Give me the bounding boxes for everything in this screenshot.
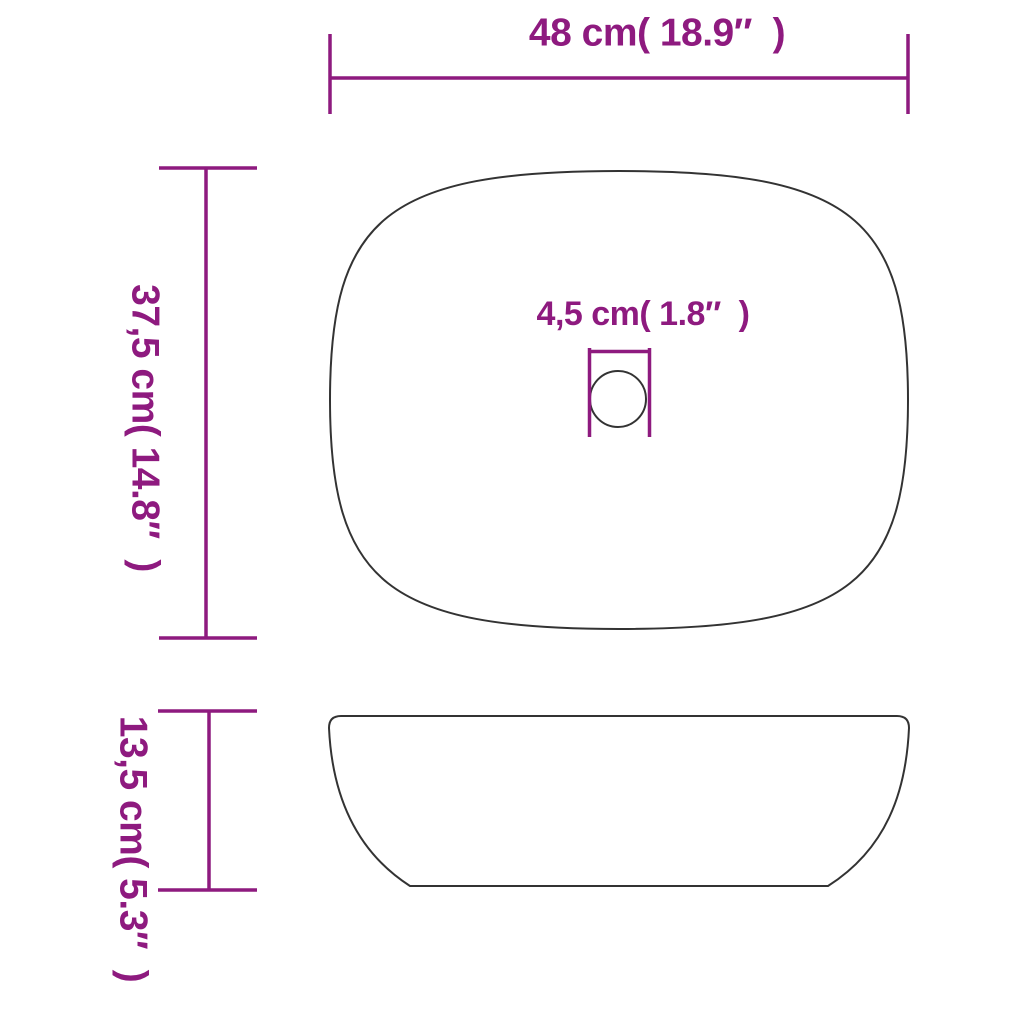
drain-dimension-label: 4,5 cm( 1.8″ ) — [537, 297, 750, 331]
depth-dimension-line — [159, 168, 257, 638]
height-dimension-line — [158, 711, 257, 890]
depth-dimension-label: 37,5 cm( 14.8″ ) — [126, 284, 165, 572]
height-dimension-label: 13,5 cm( 5.3″ ) — [114, 716, 153, 983]
width-dimension-label: 48 cm( 18.9″ ) — [529, 14, 785, 53]
basin-side-view-outline — [329, 716, 909, 886]
diagram-canvas: 48 cm( 18.9″ ) 37,5 cm( 14.8″ ) 4,5 cm( … — [0, 0, 1024, 1024]
drain-hole — [590, 371, 646, 427]
